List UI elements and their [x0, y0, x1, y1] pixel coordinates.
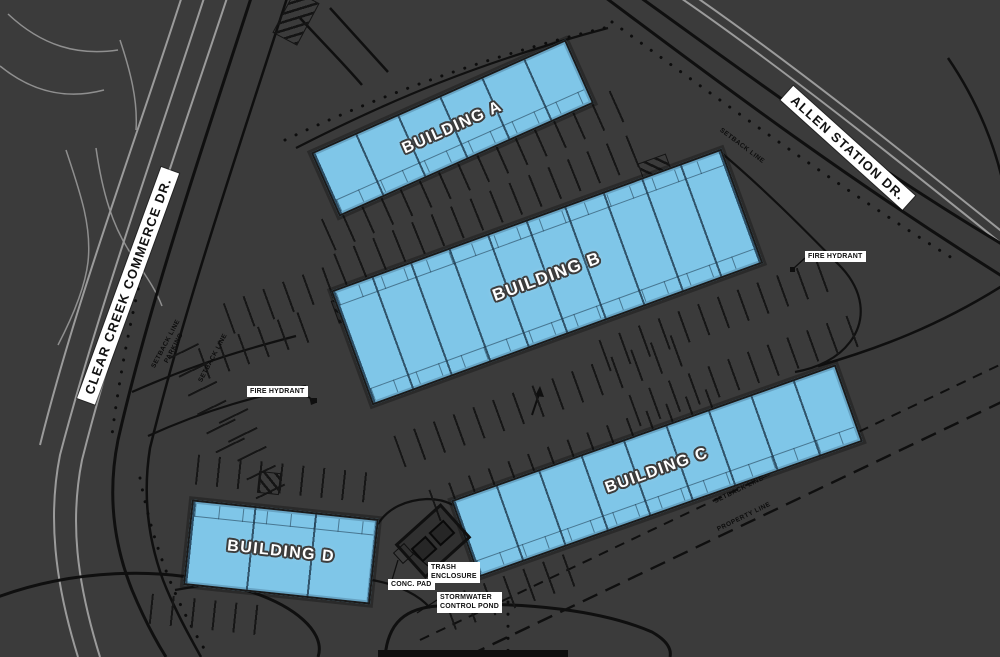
fire-hydrant-label-west: FIRE HYDRANT — [247, 386, 308, 397]
fire-hydrant-text: FIRE HYDRANT — [250, 388, 305, 395]
stormwater-pond-label: STORMWATER CONTROL POND — [437, 592, 502, 613]
conc-pad-label: CONC. PAD — [388, 579, 435, 590]
bottom-road-stub — [378, 650, 568, 657]
trash-enclosure-text: ENCLOSURE — [431, 572, 477, 581]
site-plan: BUILDING A BUILDING B BUILDING C BUILDIN… — [0, 0, 1000, 657]
trash-enclosure-label: TRASH ENCLOSURE — [428, 562, 480, 583]
conc-pad-text: CONC. PAD — [391, 581, 432, 588]
building-c-label: BUILDING C — [603, 444, 711, 497]
trash-enclosure-text: TRASH — [431, 563, 477, 572]
trash-bin — [428, 520, 455, 547]
building-b-label: BUILDING B — [490, 248, 604, 306]
stormwater-text: CONTROL POND — [440, 602, 499, 611]
building-a-label: BUILDING A — [400, 98, 506, 158]
building-d-label: BUILDING D — [226, 537, 336, 566]
fire-hydrant-text: FIRE HYDRANT — [808, 253, 863, 260]
creek-lines — [0, 14, 162, 345]
hatched-area — [257, 471, 281, 495]
fire-hydrant-label-east: FIRE HYDRANT — [805, 251, 866, 262]
stormwater-text: STORMWATER — [440, 593, 499, 602]
